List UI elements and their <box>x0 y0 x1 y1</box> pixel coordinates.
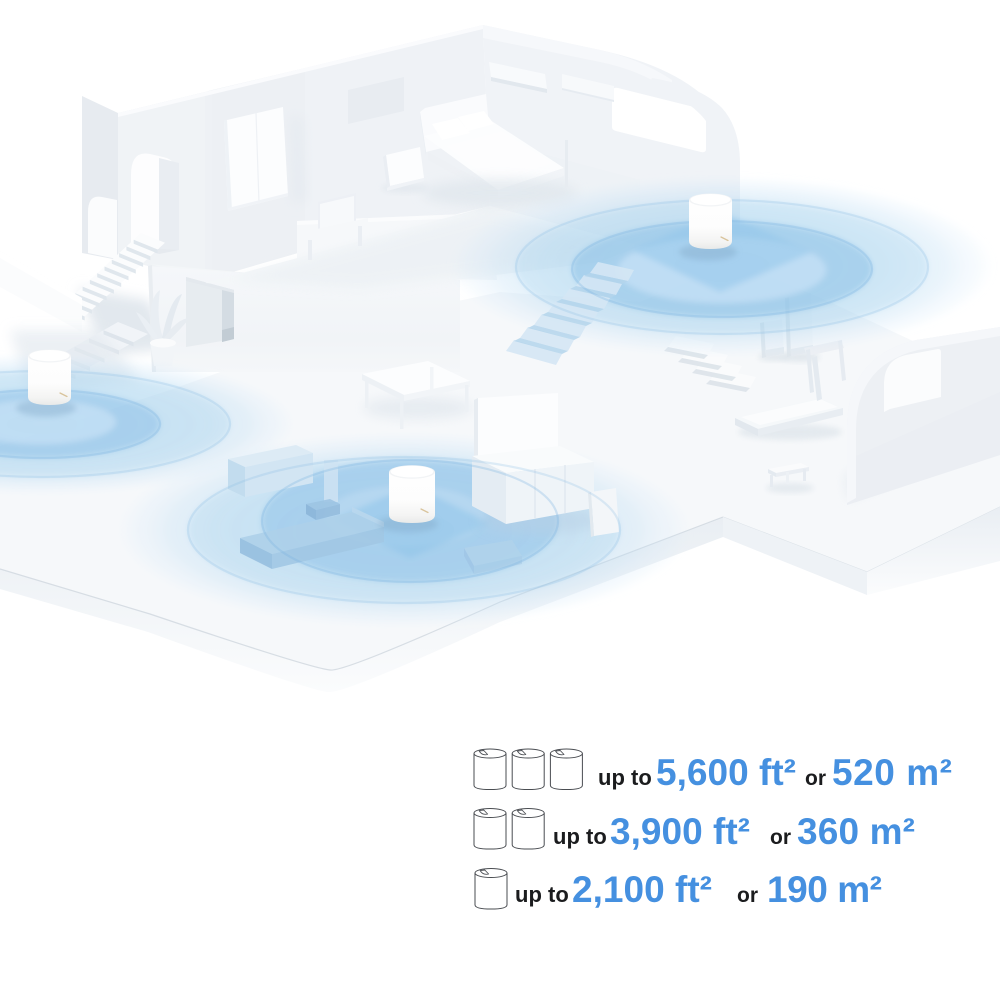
svg-text:or: or <box>805 767 826 790</box>
svg-text:or: or <box>770 826 791 849</box>
svg-text:520 m²: 520 m² <box>832 752 952 793</box>
svg-text:5,600 ft²: 5,600 ft² <box>656 752 796 793</box>
svg-text:up to: up to <box>553 824 607 849</box>
svg-text:or: or <box>737 884 758 907</box>
svg-text:up to: up to <box>598 765 652 790</box>
svg-text:3,900 ft²: 3,900 ft² <box>610 811 750 852</box>
svg-text:360 m²: 360 m² <box>797 811 915 852</box>
svg-text:190 m²: 190 m² <box>767 869 882 910</box>
svg-text:2,100 ft²: 2,100 ft² <box>572 869 712 910</box>
svg-text:up to: up to <box>515 882 569 907</box>
